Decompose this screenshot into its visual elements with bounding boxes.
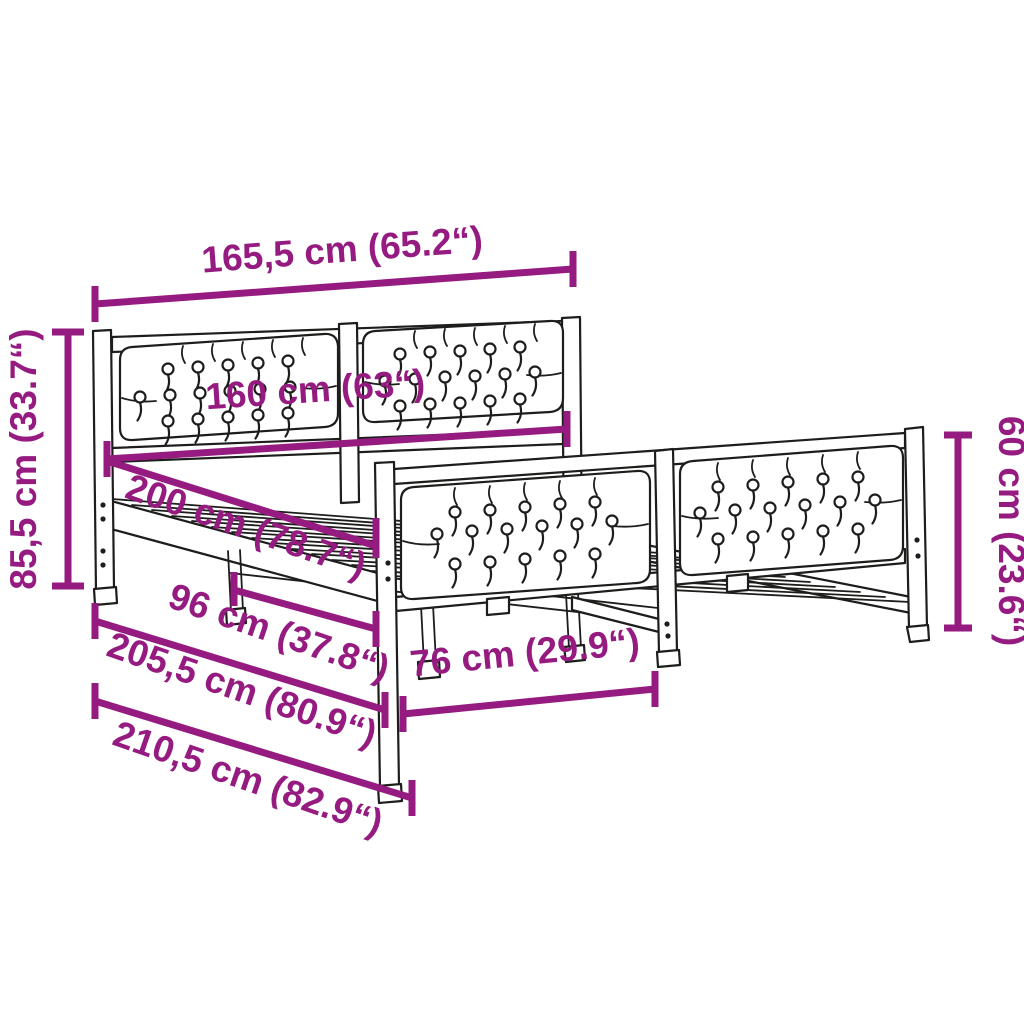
- slat-bracket: [727, 574, 748, 592]
- footboard-post-right: [905, 427, 927, 629]
- product-dimension-diagram: 165,5 cm (65.2“) 160 cm (63“) 85,5 cm (3…: [0, 0, 1024, 1024]
- dimension-outer-width: 165,5 cm (65.2“): [95, 219, 573, 322]
- dimension-label-footboard-width: 76 cm (29.9“): [408, 621, 641, 685]
- dimension-label-headboard-height: 85,5 cm (33.7“): [3, 328, 44, 589]
- bed-frame-line-art: 165,5 cm (65.2“) 160 cm (63“) 85,5 cm (3…: [0, 0, 1024, 1024]
- headboard-post-centre: [339, 323, 359, 503]
- slat-bracket: [487, 597, 509, 615]
- footboard: [375, 427, 929, 803]
- dimension-headboard-height: 85,5 cm (33.7“): [3, 328, 84, 589]
- dimension-footboard-height: 60 cm (23.6“): [944, 416, 1024, 646]
- headboard-post-left-foot: [94, 587, 117, 605]
- dimension-footboard-width: 76 cm (29.9“): [403, 621, 655, 732]
- footboard-post-right-foot: [907, 625, 929, 642]
- footboard-cushion-right: [680, 446, 903, 575]
- dimension-label-footboard-height: 60 cm (23.6“): [991, 416, 1024, 646]
- dimension-label-outer-width: 165,5 cm (65.2“): [200, 219, 484, 281]
- footboard-post-centre-foot: [657, 650, 680, 667]
